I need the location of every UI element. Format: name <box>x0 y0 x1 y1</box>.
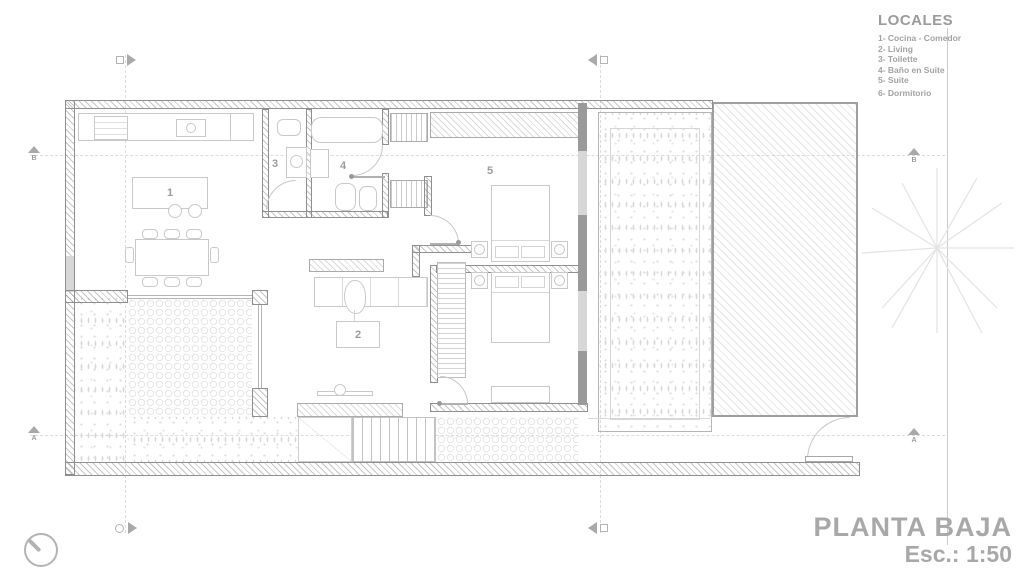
dining-table <box>135 239 209 276</box>
column-patio-south <box>252 388 268 417</box>
section-marker-b-right: B <box>907 157 921 164</box>
bathtub <box>311 117 383 143</box>
suite-wardrobe <box>430 112 580 138</box>
stove <box>94 116 128 140</box>
vanity-basin-room3 <box>290 155 303 168</box>
tv-console <box>297 403 403 417</box>
closet-lower <box>390 180 428 208</box>
nightstand-lamp <box>554 244 565 255</box>
section-cut-arrow-icon <box>128 522 137 534</box>
garden-bed-bottom <box>128 417 298 462</box>
wall-hall-north <box>412 245 472 253</box>
door-handle-suite <box>456 240 461 245</box>
tree-canopy-drawing <box>852 148 1022 358</box>
wall-north <box>65 100 713 109</box>
legend-item: 1- Cocina - Comedor <box>878 33 1020 44</box>
pillow <box>495 276 519 288</box>
dining-chair <box>186 229 202 239</box>
wall-bath-east-lower <box>382 173 389 218</box>
wall-bath-east-upper <box>382 109 389 145</box>
window-west <box>66 256 74 292</box>
dining-chair <box>142 277 158 287</box>
drawing-title: PLANTA BAJA <box>700 513 1012 541</box>
toilet-room3 <box>277 119 301 136</box>
coffee-table: 2 <box>336 321 380 348</box>
toilet-room4 <box>335 183 356 211</box>
wall-kitchen-south <box>65 290 128 303</box>
bidet-room4 <box>359 186 377 211</box>
section-cut-square-icon <box>600 56 608 64</box>
staircase <box>352 417 436 462</box>
wall-bath-south <box>262 211 388 218</box>
door-arc-suite <box>430 215 459 244</box>
room-label-toilette: 3 <box>272 158 278 170</box>
door-leaf-bedroom <box>440 403 468 405</box>
section-cut-arrow-icon <box>588 54 597 66</box>
covered-deck-roof <box>712 102 858 417</box>
glazing-patio-east <box>258 305 262 388</box>
legend: LOCALES 1- Cocina - Comedor 2- Living 3-… <box>878 12 1020 99</box>
closet-upper <box>390 113 428 142</box>
legend-item: 3- Toilette <box>878 54 1020 65</box>
glazing-patio-north <box>128 295 252 299</box>
dining-chair <box>164 229 180 239</box>
window-bedroom-east <box>578 291 587 351</box>
section-marker-icon <box>908 148 920 155</box>
wall-south <box>65 462 860 476</box>
section-marker-a-right: A <box>907 437 921 444</box>
section-marker-b-left: B <box>27 155 41 162</box>
legend-item: 6- Dormitorio <box>878 88 1020 99</box>
plant-drawing <box>344 280 366 314</box>
legend-item: 4- Baño en Suite <box>878 65 1020 76</box>
room-label-bath: 4 <box>340 160 346 172</box>
legend-item: 2- Living <box>878 44 1020 55</box>
media-device <box>334 384 346 396</box>
dining-chair <box>210 247 219 263</box>
room-label-suite: 5 <box>487 165 493 177</box>
section-cut-square-icon <box>600 524 608 532</box>
floor-plan-sheet: 1 3 4 5 6 2 <box>0 0 1024 576</box>
door-handle-bedroom <box>437 401 442 406</box>
pillow <box>521 276 545 288</box>
door-arc-bedroom <box>440 376 468 404</box>
section-cut-square-icon <box>116 56 124 64</box>
legend-title: LOCALES <box>878 12 1020 29</box>
wall-east-segment-2 <box>578 215 587 291</box>
desk-bedroom <box>491 386 550 403</box>
section-marker-icon <box>28 426 40 433</box>
window-suite-east <box>578 151 587 215</box>
door-leaf-suite <box>430 243 459 245</box>
garden-bed-left <box>75 298 128 462</box>
dining-chair <box>186 277 202 287</box>
sofa <box>314 277 428 307</box>
living-console-shelf <box>309 259 384 272</box>
wall-hall-west <box>412 245 420 277</box>
island-stool-2 <box>188 204 202 218</box>
stair-landing <box>298 417 352 462</box>
driveway-step-line <box>588 418 712 419</box>
pillow <box>495 246 519 258</box>
drawing-scale: Esc.: 1:50 <box>700 541 1012 567</box>
section-marker-icon <box>908 428 920 435</box>
sink-basin <box>186 123 196 133</box>
dining-chair <box>164 277 180 287</box>
wardrobe-bedroom <box>437 262 466 378</box>
wall-east-segment-1 <box>578 103 587 151</box>
section-cut-circle-icon <box>115 524 124 533</box>
section-marker-a-left: A <box>27 435 41 442</box>
section-marker-icon <box>28 146 40 153</box>
door-arc-bath <box>352 145 383 176</box>
bed-fold-line <box>492 292 549 293</box>
room-label-living: 2 <box>355 329 361 341</box>
patio-paving <box>128 299 252 417</box>
section-cut-arrow-icon <box>588 522 597 534</box>
door-arc-toilette <box>266 180 296 210</box>
island-stool-1 <box>168 204 182 218</box>
legend-item: 5- Suite <box>878 75 1020 86</box>
dining-chair <box>125 247 134 263</box>
section-cut-arrow-icon <box>127 54 136 66</box>
gate-leaf <box>805 456 853 462</box>
nightstand-lamp <box>554 275 565 286</box>
bed-fold-line <box>492 240 549 241</box>
wall-suite-west <box>424 176 432 216</box>
gate-arc <box>807 417 850 460</box>
title-block: PLANTA BAJA Esc.: 1:50 <box>700 513 1012 567</box>
door-leaf-bath <box>352 176 385 178</box>
pillow <box>521 246 545 258</box>
door-handle-bath <box>349 174 354 179</box>
column-patio-north <box>252 290 268 305</box>
entry-paving <box>437 417 578 462</box>
dining-chair <box>142 229 158 239</box>
wall-east-segment-3 <box>578 351 587 405</box>
vanity-room4 <box>310 149 329 178</box>
nightstand-lamp <box>474 275 485 286</box>
planter-inner-border <box>610 128 700 420</box>
nightstand-lamp <box>474 244 485 255</box>
room-label-kitchen: 1 <box>167 187 173 199</box>
kitchen-cabinet <box>230 113 254 141</box>
